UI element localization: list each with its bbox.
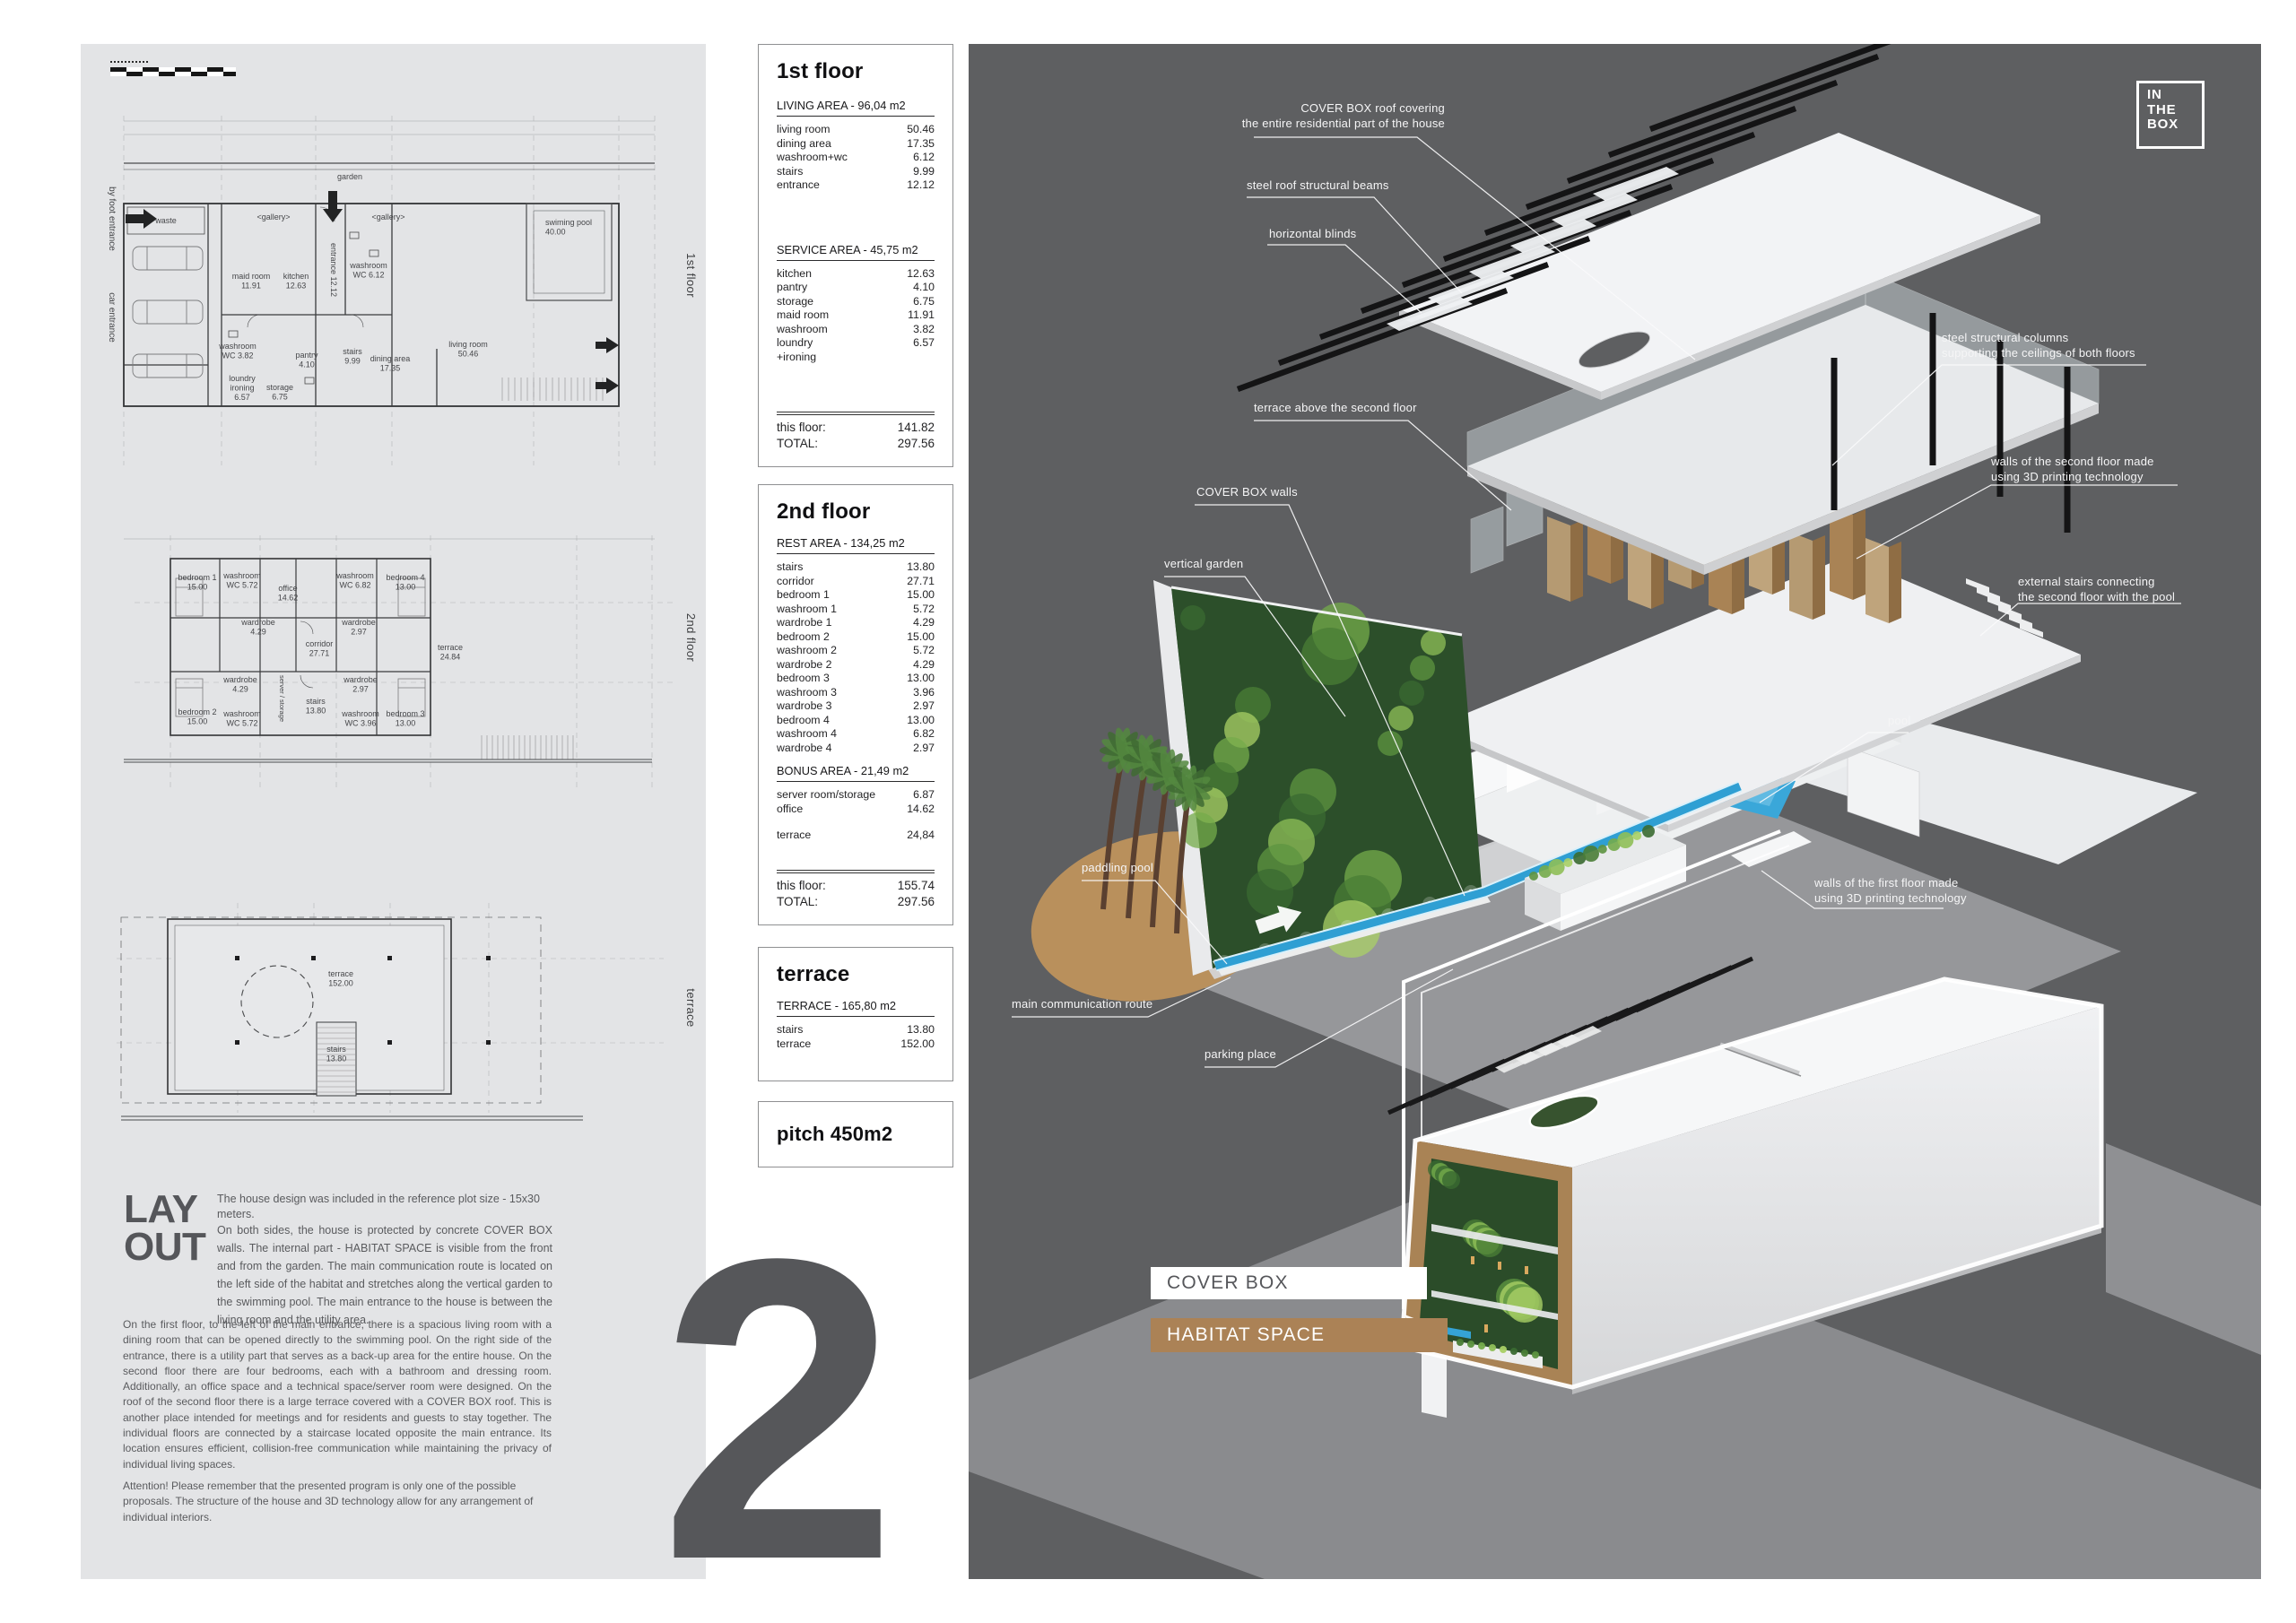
row-value: 5.72 bbox=[913, 603, 935, 617]
annotation-beams: steel roof structural beams bbox=[1247, 178, 1399, 194]
table-row: terrace24,84 bbox=[777, 829, 935, 843]
row-value: 2.97 bbox=[913, 699, 935, 714]
row-value: 11.91 bbox=[908, 308, 935, 323]
table-row: dining area17.35 bbox=[777, 137, 935, 152]
table-row: storage6.75 bbox=[777, 295, 935, 309]
row-label: washroom 2 bbox=[777, 644, 837, 658]
room-label-terrace: terrace152.00 bbox=[328, 969, 353, 988]
room-label-maid: maid room11.91 bbox=[232, 272, 271, 291]
totals-rule bbox=[777, 870, 935, 873]
table-row: terrace152.00 bbox=[777, 1037, 935, 1052]
table-row: wardrobe 14.29 bbox=[777, 616, 935, 630]
presentation-sheet: garden<gallery><gallery>swiming pool40.0… bbox=[0, 0, 2296, 1623]
row-value: 6.57 bbox=[913, 336, 935, 364]
annotation-roof: COVER BOX roof covering the entire resid… bbox=[1230, 101, 1445, 131]
room-label-pantry: pantry4.10 bbox=[295, 351, 318, 369]
room-label-stairs: stairs13.80 bbox=[326, 1045, 347, 1063]
room-label-bedroom1: bedroom 115.00 bbox=[178, 573, 216, 592]
row-value: 6.75 bbox=[913, 295, 935, 309]
row-value: 3.82 bbox=[913, 323, 935, 337]
row-label: this floor: bbox=[777, 420, 826, 436]
room-label-washroom1: washroomWC 5.72 bbox=[222, 571, 261, 590]
row-label: terrace bbox=[777, 829, 811, 843]
row-value: 13.00 bbox=[907, 714, 935, 728]
room-label-wardrobe1: wardrobe4.29 bbox=[240, 618, 275, 637]
row-label: washroom 3 bbox=[777, 686, 837, 700]
row-label: bedroom 1 bbox=[777, 588, 830, 603]
annotation-main-route: main communication route bbox=[1012, 997, 1173, 1012]
table-row: living room50.46 bbox=[777, 123, 935, 137]
row-value: 12.12 bbox=[907, 178, 935, 193]
row-value: 15.00 bbox=[907, 630, 935, 645]
layout-paragraph-4: Attention! Please remember that the pres… bbox=[123, 1479, 552, 1525]
room-label-washroom3: washroomWC 3.96 bbox=[341, 709, 379, 728]
row-label: corridor bbox=[777, 575, 814, 589]
row-label: washroom+wc bbox=[777, 151, 848, 165]
table-row: wardrobe 32.97 bbox=[777, 699, 935, 714]
layout-title: LAYOUT bbox=[124, 1191, 205, 1266]
table-row: stairs13.80 bbox=[777, 1023, 935, 1037]
room-label-gallery1: <gallery> bbox=[257, 213, 290, 221]
row-value: 13.80 bbox=[907, 1023, 935, 1037]
room-label-car: car entrance bbox=[107, 292, 117, 343]
table-row: corridor27.71 bbox=[777, 575, 935, 589]
plan-1st-floor bbox=[124, 116, 655, 465]
area-table-1st-floor: 1st floorLIVING AREA - 96,04 m2living ro… bbox=[758, 44, 953, 467]
row-value: 6.12 bbox=[913, 151, 935, 165]
row-value: 155.74 bbox=[898, 878, 935, 894]
section-header: LIVING AREA - 96,04 m2 bbox=[777, 99, 935, 117]
annotation-vertical-garden: vertical garden bbox=[1164, 557, 1272, 572]
table-row: server room/storage6.87 bbox=[777, 788, 935, 803]
row-label: server room/storage bbox=[777, 788, 875, 803]
table-row: stairs13.80 bbox=[777, 560, 935, 575]
room-label-garden: garden bbox=[337, 172, 362, 181]
plans-panel: garden<gallery><gallery>swiming pool40.0… bbox=[81, 44, 706, 1579]
logo-line-2: THE bbox=[2147, 103, 2202, 118]
habitat-space-label-text: HABITAT SPACE bbox=[1167, 1324, 1325, 1346]
row-value: 17.35 bbox=[907, 137, 935, 152]
plan-side-label-side_label: 1st floor bbox=[684, 253, 698, 298]
room-label-loundry: loundryironing6.57 bbox=[229, 374, 256, 402]
table-row: kitchen12.63 bbox=[777, 267, 935, 282]
room-label-wardrobe3: wardrobe2.97 bbox=[343, 675, 378, 694]
table-row: washroom+wc6.12 bbox=[777, 151, 935, 165]
table-row: pantry4.10 bbox=[777, 281, 935, 295]
room-label-washroom2: washroomWC 5.72 bbox=[222, 709, 261, 728]
table-row: washroom 15.72 bbox=[777, 603, 935, 617]
row-label: bedroom 4 bbox=[777, 714, 830, 728]
table-row: TOTAL:297.56 bbox=[777, 436, 935, 452]
annotation-walls-2nd: walls of the second floor made using 3D … bbox=[1991, 455, 2184, 484]
in-the-box-logo: IN THE BOX bbox=[2136, 81, 2205, 149]
layout-paragraph-3: On the first floor, to the left of the m… bbox=[123, 1317, 552, 1472]
row-value: 3.96 bbox=[913, 686, 935, 700]
sheet-number: 2 bbox=[659, 1212, 894, 1607]
pitch-title: pitch 450m2 bbox=[777, 1123, 935, 1146]
room-label-corridor: corridor27.71 bbox=[306, 639, 334, 658]
row-value: 5.72 bbox=[913, 644, 935, 658]
room-label-pool: swiming pool40.00 bbox=[545, 218, 592, 237]
annotation-columns: steel structural columns supporting the … bbox=[1942, 331, 2161, 360]
section-header: SERVICE AREA - 45,75 m2 bbox=[777, 243, 935, 261]
totals-rule bbox=[777, 412, 935, 415]
room-label-washwc2: washroomWC 3.82 bbox=[218, 342, 257, 360]
annotation-stairs-ext: external stairs connecting the second fl… bbox=[2018, 575, 2202, 604]
annotation-walls-1st: walls of the first floor made using 3D p… bbox=[1814, 876, 1998, 906]
row-label: wardrobe 3 bbox=[777, 699, 832, 714]
row-value: 4.10 bbox=[913, 281, 935, 295]
row-label: washroom 4 bbox=[777, 727, 837, 742]
section-header: REST AREA - 134,25 m2 bbox=[777, 536, 935, 554]
row-value: 24,84 bbox=[907, 829, 935, 843]
row-value: 2.97 bbox=[913, 742, 935, 756]
row-label: wardrobe 2 bbox=[777, 658, 832, 673]
area-table-terrace: terraceTERRACE - 165,80 m2stairs13.80ter… bbox=[758, 947, 953, 1081]
row-value: 50.46 bbox=[907, 123, 935, 137]
room-label-stairs: stairs9.99 bbox=[343, 347, 362, 366]
table-row: office14.62 bbox=[777, 803, 935, 817]
row-label: living room bbox=[777, 123, 830, 137]
section-header: TERRACE - 165,80 m2 bbox=[777, 999, 935, 1017]
table-row: entrance12.12 bbox=[777, 178, 935, 193]
table-row: this floor:141.82 bbox=[777, 420, 935, 436]
table-row: TOTAL:297.56 bbox=[777, 894, 935, 910]
row-value: 6.87 bbox=[913, 788, 935, 803]
row-value: 297.56 bbox=[898, 894, 935, 910]
room-label-byfoot: by foot entrance bbox=[107, 187, 117, 251]
pitch-box: pitch 450m2 bbox=[758, 1101, 953, 1167]
row-label: TOTAL: bbox=[777, 436, 818, 452]
room-label-kitchen: kitchen12.63 bbox=[283, 272, 309, 291]
row-value: 152.00 bbox=[900, 1037, 935, 1052]
row-label: washroom 1 bbox=[777, 603, 837, 617]
row-label: dining area bbox=[777, 137, 831, 152]
room-label-washroom4: washroomWC 6.82 bbox=[335, 571, 374, 590]
room-label-bedroom4: bedroom 413.00 bbox=[386, 573, 424, 592]
room-label-gallery2: <gallery> bbox=[371, 213, 404, 221]
row-label: kitchen bbox=[777, 267, 812, 282]
room-label-terrace: terrace24.84 bbox=[438, 643, 463, 662]
habitat-space-label: HABITAT SPACE bbox=[1151, 1318, 1448, 1352]
table-row: wardrobe 42.97 bbox=[777, 742, 935, 756]
room-label-stairs: stairs13.80 bbox=[306, 697, 326, 716]
room-label-wardrobe2: wardrobe4.29 bbox=[222, 675, 257, 694]
room-label-server: server / storage bbox=[278, 675, 286, 722]
annotation-parking: parking place bbox=[1205, 1047, 1303, 1063]
row-label: loundry +ironing bbox=[777, 336, 816, 364]
annotation-paddling-pool: paddling pool bbox=[1082, 861, 1180, 876]
area-table-2nd-floor: 2nd floorREST AREA - 134,25 m2stairs13.8… bbox=[758, 484, 953, 925]
row-label: stairs bbox=[777, 1023, 803, 1037]
row-value: 14.62 bbox=[907, 803, 935, 817]
row-label: entrance bbox=[777, 178, 820, 193]
row-label: TOTAL: bbox=[777, 894, 818, 910]
logo-line-1: IN bbox=[2147, 88, 2202, 103]
room-label-waste: waste bbox=[154, 216, 177, 225]
table-row: washroom 46.82 bbox=[777, 727, 935, 742]
table-row: stairs9.99 bbox=[777, 165, 935, 179]
table-row: wardrobe 24.29 bbox=[777, 658, 935, 673]
table-row: washroom3.82 bbox=[777, 323, 935, 337]
row-label: pantry bbox=[777, 281, 807, 295]
table-row: bedroom 413.00 bbox=[777, 714, 935, 728]
logo-line-3: BOX bbox=[2147, 117, 2202, 133]
row-value: 297.56 bbox=[898, 436, 935, 452]
room-label-living: living room50.46 bbox=[448, 340, 488, 359]
table-row: bedroom 215.00 bbox=[777, 630, 935, 645]
plan-side-label-side_label: terrace bbox=[684, 988, 698, 1027]
annotation-pool: pool bbox=[1888, 714, 1933, 729]
table-row: loundry +ironing6.57 bbox=[777, 336, 935, 364]
row-label: washroom bbox=[777, 323, 828, 337]
row-label: stairs bbox=[777, 165, 803, 179]
annotation-terrace-above: terrace above the second floor bbox=[1254, 401, 1442, 416]
annotation-coverbox-walls: COVER BOX walls bbox=[1196, 485, 1322, 500]
row-label: terrace bbox=[777, 1037, 811, 1052]
row-label: this floor: bbox=[777, 878, 826, 894]
layout-paragraph-1: The house design was included in the ref… bbox=[217, 1192, 558, 1222]
section-header: BONUS AREA - 21,49 m2 bbox=[777, 764, 935, 782]
render-panel: COVER BOX roof covering the entire resid… bbox=[969, 44, 2261, 1579]
table-row: maid room11.91 bbox=[777, 308, 935, 323]
plan-side-label-side_label: 2nd floor bbox=[684, 613, 698, 662]
room-label-entrance: entrance 12.12 bbox=[329, 243, 338, 297]
row-value: 27.71 bbox=[907, 575, 935, 589]
row-value: 12.63 bbox=[907, 267, 935, 282]
cover-box-label-text: COVER BOX bbox=[1167, 1272, 1289, 1294]
room-label-office: office14.62 bbox=[278, 584, 299, 603]
room-label-bedroom3: bedroom 313.00 bbox=[386, 709, 424, 728]
row-value: 15.00 bbox=[907, 588, 935, 603]
layout-paragraph-2: On both sides, the house is protected by… bbox=[217, 1221, 552, 1329]
row-label: bedroom 3 bbox=[777, 672, 830, 686]
row-value: 4.29 bbox=[913, 658, 935, 673]
room-label-wardrobe4: wardrobe2.97 bbox=[341, 618, 376, 637]
annotation-blinds: horizontal blinds bbox=[1269, 227, 1386, 242]
plan-terrace bbox=[117, 903, 664, 1120]
row-label: wardrobe 1 bbox=[777, 616, 832, 630]
row-label: stairs bbox=[777, 560, 803, 575]
table-row: washroom 33.96 bbox=[777, 686, 935, 700]
row-value: 13.00 bbox=[907, 672, 935, 686]
room-label-storage: storage6.75 bbox=[266, 383, 293, 402]
row-value: 4.29 bbox=[913, 616, 935, 630]
row-label: maid room bbox=[777, 308, 829, 323]
row-value: 13.80 bbox=[907, 560, 935, 575]
table-row: bedroom 313.00 bbox=[777, 672, 935, 686]
row-label: office bbox=[777, 803, 803, 817]
layout-title-line2: OUT bbox=[124, 1225, 205, 1269]
room-label-dining: dining area17.35 bbox=[370, 354, 411, 373]
table-row: bedroom 115.00 bbox=[777, 588, 935, 603]
table-row: washroom 25.72 bbox=[777, 644, 935, 658]
room-label-washwc1: washroomWC 6.12 bbox=[349, 261, 387, 280]
table-row: this floor:155.74 bbox=[777, 878, 935, 894]
row-value: 141.82 bbox=[898, 420, 935, 436]
table-title: 1st floor bbox=[777, 59, 935, 84]
row-label: storage bbox=[777, 295, 813, 309]
cover-box-label: COVER BOX bbox=[1151, 1267, 1427, 1299]
table-title: 2nd floor bbox=[777, 499, 935, 525]
table-title: terrace bbox=[777, 962, 935, 987]
row-label: wardrobe 4 bbox=[777, 742, 832, 756]
row-value: 9.99 bbox=[913, 165, 935, 179]
row-label: bedroom 2 bbox=[777, 630, 830, 645]
row-value: 6.82 bbox=[913, 727, 935, 742]
